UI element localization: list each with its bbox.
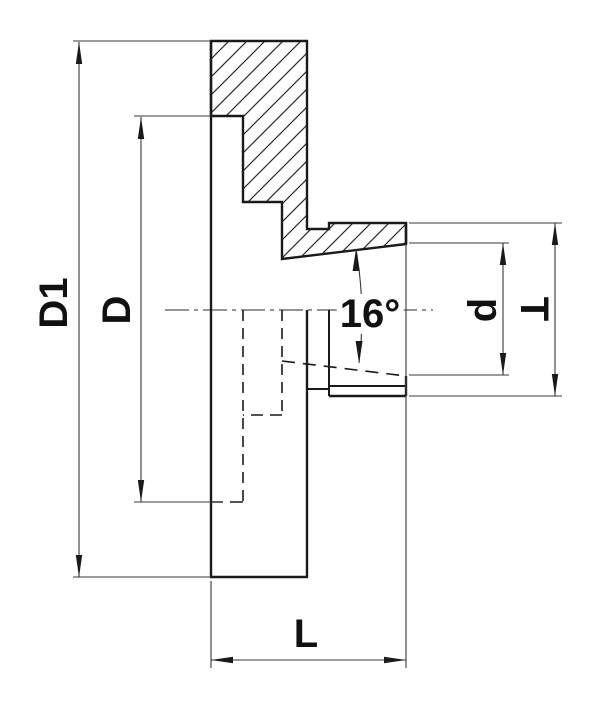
- dimension-label-taper-angle: 16°: [337, 294, 404, 334]
- dimension-lines: [73, 41, 562, 668]
- dimension-label-d1: D1: [34, 277, 74, 328]
- arrowheads: [76, 42, 558, 663]
- dimension-label-hub: T: [514, 297, 554, 321]
- dimension-label-length: L: [294, 614, 318, 654]
- technical-drawing-canvas: D1 D 16° d T L: [0, 0, 600, 707]
- hatched-section: [211, 41, 406, 259]
- dimension-label-bore: d: [463, 298, 503, 322]
- dimension-label-d-flange: D: [97, 296, 137, 325]
- hidden-lines: [211, 310, 406, 502]
- flange-section-drawing: [0, 0, 600, 707]
